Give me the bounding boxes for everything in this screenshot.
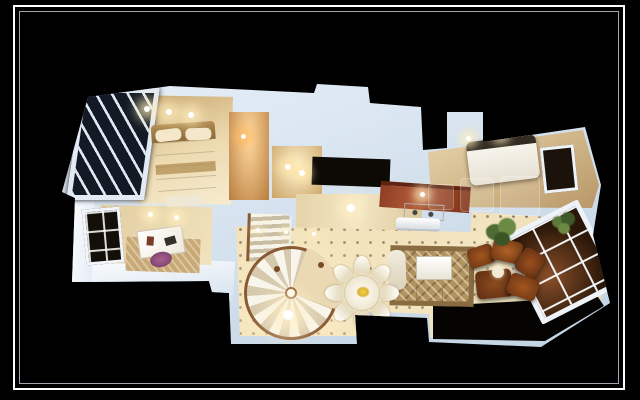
watermark [428,168,544,232]
scene-3d-floorplan [0,0,640,400]
watermark-block [500,176,540,216]
watermark-block [460,178,494,212]
watermark-block [428,184,454,210]
